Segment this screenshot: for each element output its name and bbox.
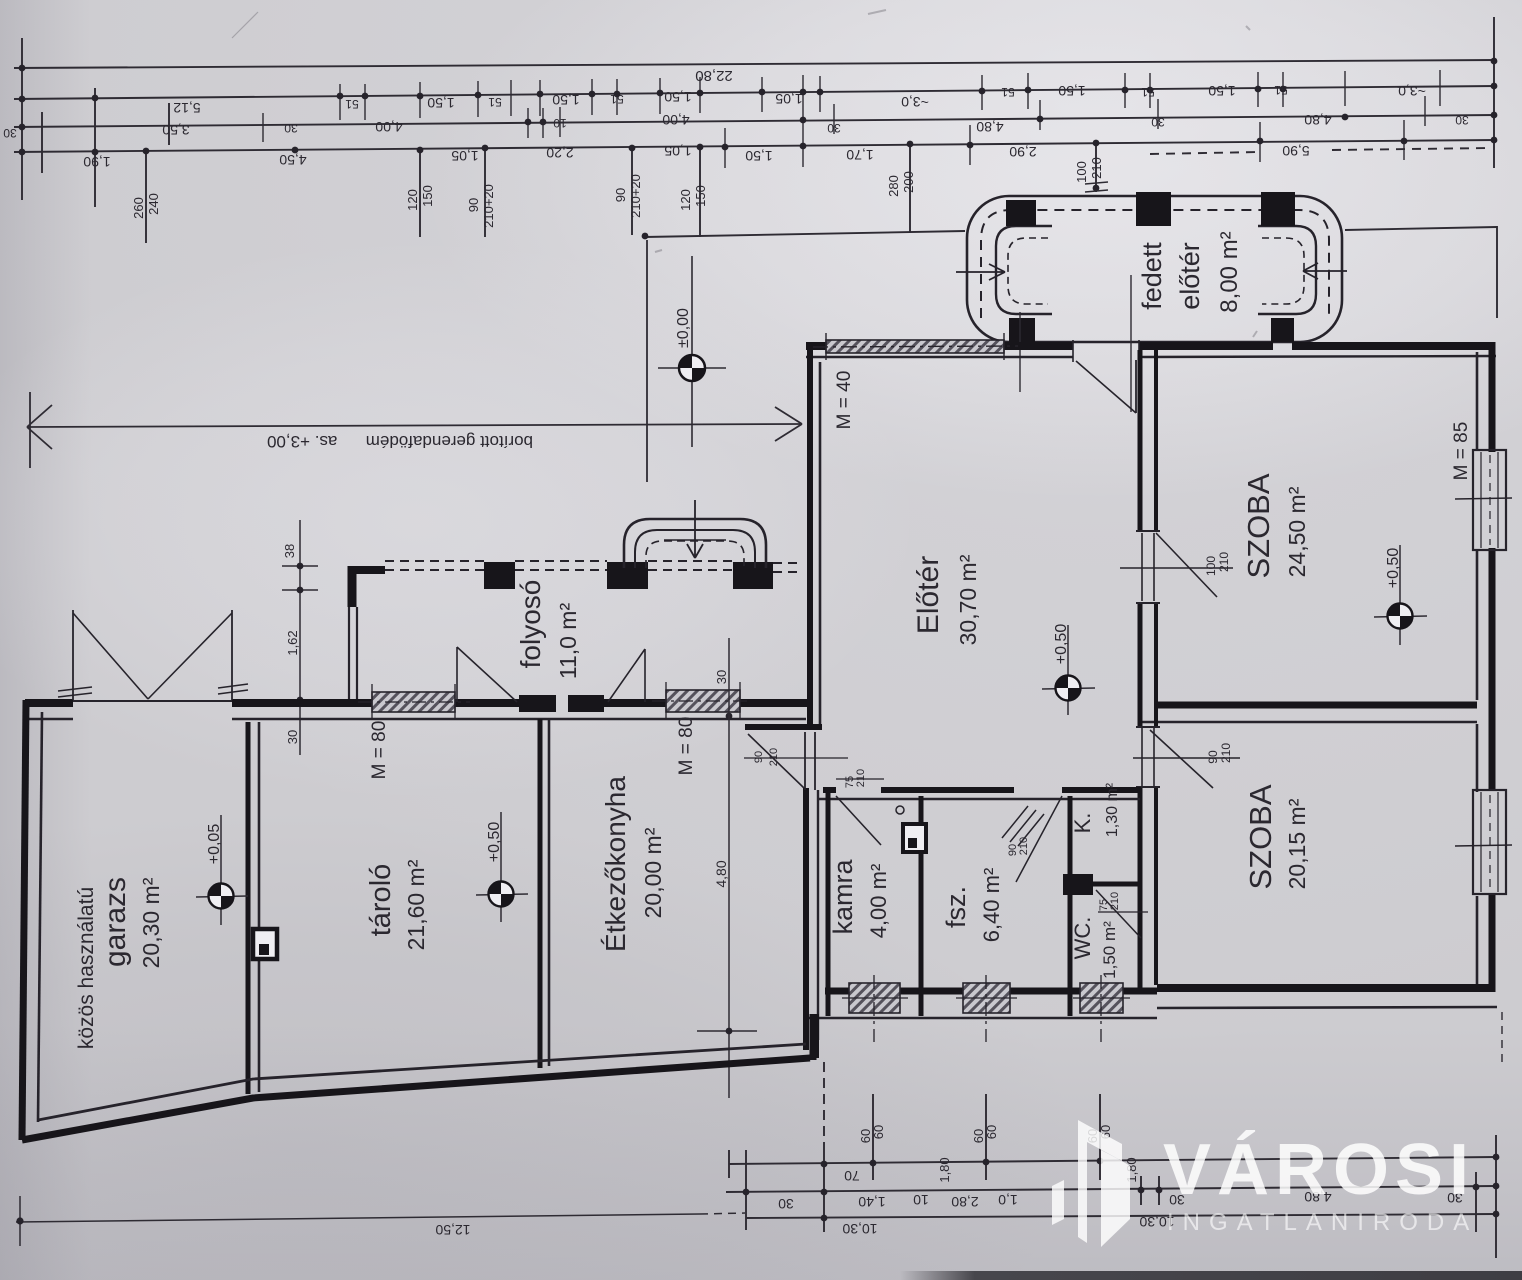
svg-text:120: 120 bbox=[678, 189, 693, 211]
svg-text:20,00 m²: 20,00 m² bbox=[640, 827, 666, 918]
svg-text:tároló: tároló bbox=[365, 864, 397, 937]
svg-text:30: 30 bbox=[1151, 115, 1165, 129]
svg-text:30: 30 bbox=[285, 730, 300, 744]
svg-text:22,80: 22,80 bbox=[695, 67, 733, 84]
svg-text:SZOBA: SZOBA bbox=[1241, 473, 1276, 578]
svg-text:4,80: 4,80 bbox=[713, 860, 729, 887]
svg-text:90: 90 bbox=[1206, 750, 1220, 764]
svg-text:2,80: 2,80 bbox=[951, 1194, 978, 1210]
svg-text:60: 60 bbox=[984, 1125, 999, 1139]
svg-text:kamra: kamra bbox=[828, 859, 858, 935]
svg-text:210: 210 bbox=[1219, 743, 1233, 763]
svg-text:WC.: WC. bbox=[1070, 917, 1095, 960]
svg-text:előtér: előtér bbox=[1175, 242, 1205, 310]
svg-text:INGATLANIRODA: INGATLANIRODA bbox=[1167, 1209, 1478, 1236]
svg-text:51: 51 bbox=[1274, 83, 1288, 97]
svg-text:210+20: 210+20 bbox=[481, 184, 496, 228]
svg-text:200: 200 bbox=[901, 171, 916, 193]
svg-text:11,0 m²: 11,0 m² bbox=[555, 603, 581, 680]
svg-text:10: 10 bbox=[553, 116, 567, 130]
svg-text:4,00: 4,00 bbox=[375, 119, 402, 135]
svg-text:1,05: 1,05 bbox=[664, 143, 691, 159]
svg-text:38: 38 bbox=[282, 544, 297, 558]
svg-text:260: 260 bbox=[131, 197, 146, 219]
svg-text:10,30: 10,30 bbox=[842, 1221, 877, 1237]
svg-text:100: 100 bbox=[1204, 556, 1218, 576]
svg-text:8,00 m²: 8,00 m² bbox=[1216, 231, 1243, 312]
svg-text:30: 30 bbox=[714, 670, 729, 684]
svg-text:fsz.: fsz. bbox=[941, 886, 971, 928]
svg-text:30,70 m²: 30,70 m² bbox=[955, 554, 981, 645]
svg-text:1,90: 1,90 bbox=[83, 154, 110, 170]
svg-text:1,40: 1,40 bbox=[858, 1194, 885, 1210]
svg-text:~3,0: ~3,0 bbox=[1398, 83, 1426, 99]
svg-text:120: 120 bbox=[405, 189, 420, 211]
svg-text:+0,50: +0,50 bbox=[486, 822, 503, 863]
svg-text:Étkezőkonyha: Étkezőkonyha bbox=[600, 776, 631, 952]
svg-text:fedett: fedett bbox=[1137, 242, 1167, 310]
svg-text:M = 80: M = 80 bbox=[369, 721, 390, 780]
svg-text:1,50: 1,50 bbox=[664, 89, 691, 105]
svg-text:1,50: 1,50 bbox=[745, 148, 772, 164]
svg-text:20,15 m²: 20,15 m² bbox=[1284, 798, 1310, 889]
svg-text:10: 10 bbox=[913, 1192, 929, 1208]
svg-text:1,05: 1,05 bbox=[451, 148, 478, 164]
svg-text:51: 51 bbox=[1001, 85, 1015, 99]
svg-text:1,0: 1,0 bbox=[998, 1192, 1018, 1208]
svg-text:210: 210 bbox=[1018, 837, 1030, 855]
svg-text:100: 100 bbox=[1074, 161, 1089, 183]
svg-text:12,50: 12,50 bbox=[435, 1222, 470, 1238]
svg-text:90: 90 bbox=[753, 751, 765, 763]
svg-text:1,62: 1,62 bbox=[285, 630, 300, 655]
svg-text:51: 51 bbox=[610, 92, 624, 106]
svg-text:+0,50: +0,50 bbox=[1385, 548, 1402, 589]
svg-text:30: 30 bbox=[3, 126, 17, 140]
svg-text:Előtér: Előtér bbox=[912, 556, 945, 634]
svg-text:M = 40: M = 40 bbox=[834, 371, 855, 430]
svg-text:1,50: 1,50 bbox=[1208, 83, 1235, 99]
svg-text:30: 30 bbox=[827, 121, 841, 135]
svg-text:30: 30 bbox=[1455, 113, 1469, 127]
svg-text:6,40 m²: 6,40 m² bbox=[979, 868, 1004, 943]
svg-text:3,50: 3,50 bbox=[162, 122, 189, 138]
svg-text:4,50: 4,50 bbox=[279, 152, 306, 168]
svg-text:4,00 m²: 4,00 m² bbox=[866, 864, 891, 939]
svg-text:folyosó: folyosó bbox=[515, 580, 546, 669]
svg-text:51: 51 bbox=[345, 97, 359, 111]
svg-text:K.: K. bbox=[1070, 813, 1095, 834]
svg-text:+0,50: +0,50 bbox=[1053, 624, 1070, 665]
svg-text:4,80: 4,80 bbox=[1304, 112, 1331, 128]
svg-text:210: 210 bbox=[1217, 552, 1231, 572]
svg-text:30: 30 bbox=[284, 121, 298, 135]
svg-text:21,60 m²: 21,60 m² bbox=[403, 859, 429, 950]
svg-text:30: 30 bbox=[778, 1196, 794, 1212]
svg-text:+0,05: +0,05 bbox=[206, 824, 223, 865]
svg-text:2,20: 2,20 bbox=[546, 145, 573, 161]
svg-text:210: 210 bbox=[1089, 157, 1104, 179]
svg-text:2,90: 2,90 bbox=[1009, 144, 1036, 160]
svg-text:1,50 m²: 1,50 m² bbox=[1100, 921, 1119, 979]
svg-text:±0,00: ±0,00 bbox=[675, 308, 692, 348]
svg-text:1,70: 1,70 bbox=[846, 147, 873, 163]
svg-text:60: 60 bbox=[871, 1125, 886, 1139]
svg-text:1,30 m²: 1,30 m² bbox=[1104, 782, 1121, 837]
svg-text:5,90: 5,90 bbox=[1282, 143, 1309, 159]
svg-text:51: 51 bbox=[488, 95, 502, 109]
svg-text:210: 210 bbox=[855, 769, 867, 787]
svg-text:1,50: 1,50 bbox=[552, 92, 579, 108]
svg-text:24,50 m²: 24,50 m² bbox=[1284, 486, 1310, 577]
svg-text:51: 51 bbox=[1141, 85, 1155, 99]
svg-text:1,05: 1,05 bbox=[775, 91, 802, 107]
svg-text:1,50: 1,50 bbox=[427, 95, 454, 111]
svg-text:~3,0: ~3,0 bbox=[901, 94, 929, 110]
svg-text:210: 210 bbox=[1109, 892, 1121, 910]
svg-text:70: 70 bbox=[844, 1168, 860, 1184]
svg-text:SZOBA: SZOBA bbox=[1243, 784, 1278, 889]
svg-text:210: 210 bbox=[768, 748, 780, 766]
svg-text:1,80: 1,80 bbox=[937, 1157, 952, 1182]
svg-text:150: 150 bbox=[420, 185, 435, 207]
svg-text:4,00: 4,00 bbox=[662, 112, 689, 128]
svg-text:borított gerendafödém as.: borított gerendafödém as. +3,00 bbox=[267, 432, 533, 451]
svg-text:90: 90 bbox=[466, 198, 481, 212]
svg-text:VÁROSI: VÁROSI bbox=[1163, 1130, 1475, 1210]
svg-text:garazs: garazs bbox=[99, 877, 132, 967]
svg-text:280: 280 bbox=[886, 175, 901, 197]
svg-text:5,12: 5,12 bbox=[173, 100, 200, 116]
svg-text:M = 80: M = 80 bbox=[676, 717, 697, 776]
svg-text:1,50: 1,50 bbox=[1058, 83, 1085, 99]
svg-text:4,80: 4,80 bbox=[976, 119, 1003, 135]
svg-text:közös használatú: közös használatú bbox=[75, 887, 98, 1049]
svg-text:150: 150 bbox=[693, 185, 708, 207]
svg-text:210+20: 210+20 bbox=[628, 174, 643, 218]
svg-text:M = 85: M = 85 bbox=[1451, 422, 1472, 481]
svg-text:20,30 m²: 20,30 m² bbox=[138, 877, 164, 968]
svg-text:240: 240 bbox=[146, 193, 161, 215]
svg-text:90: 90 bbox=[613, 188, 628, 202]
